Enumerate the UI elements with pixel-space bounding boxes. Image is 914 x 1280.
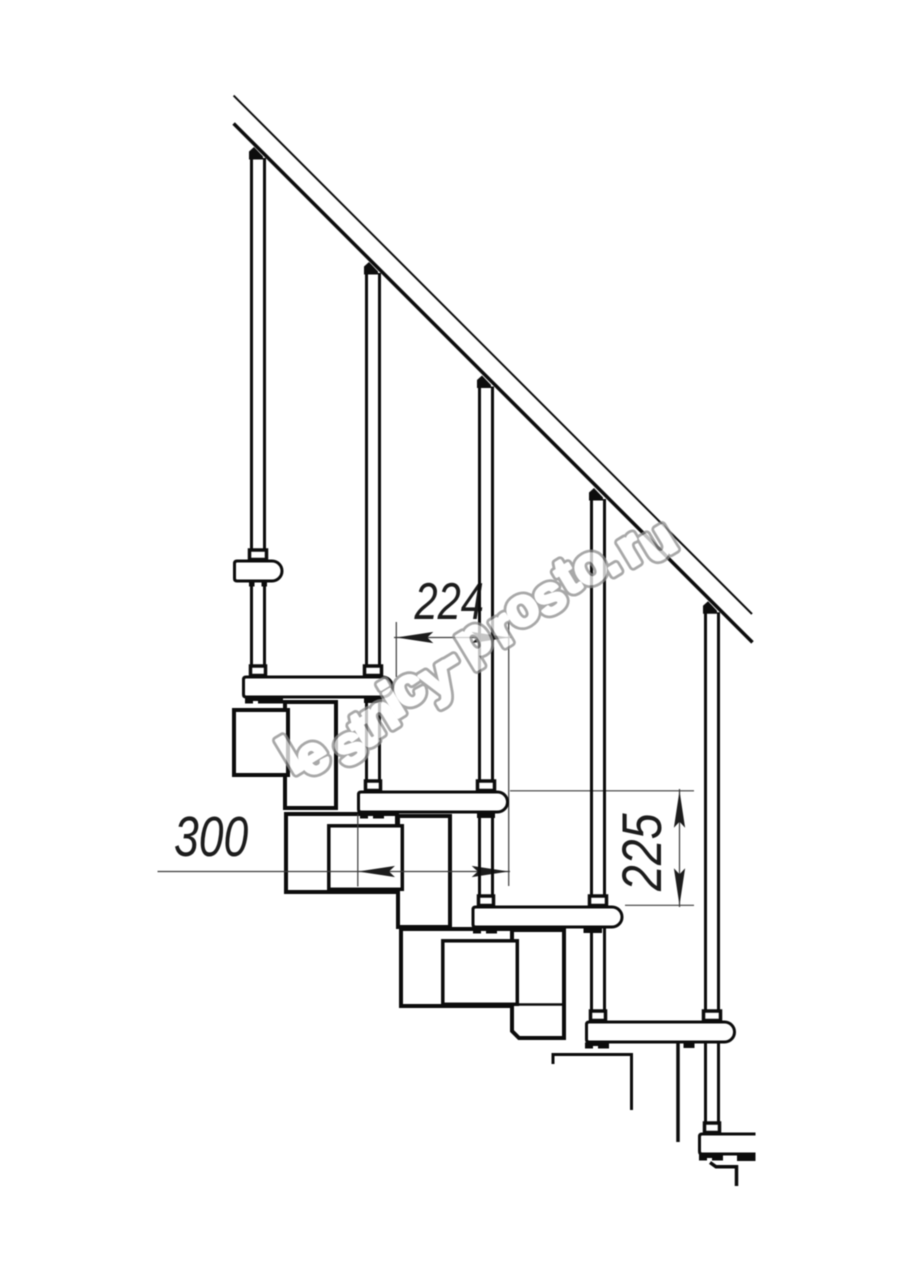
svg-text:300: 300 bbox=[174, 805, 248, 869]
svg-text:225: 225 bbox=[610, 813, 673, 892]
